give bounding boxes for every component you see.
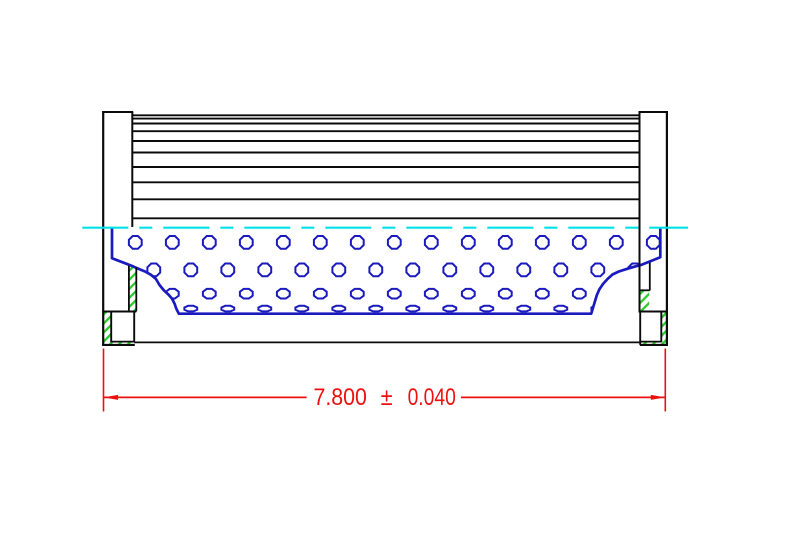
svg-text:7.800: 7.800 [314,384,367,411]
svg-text:0.040: 0.040 [408,384,456,411]
svg-text:±: ± [381,384,393,411]
